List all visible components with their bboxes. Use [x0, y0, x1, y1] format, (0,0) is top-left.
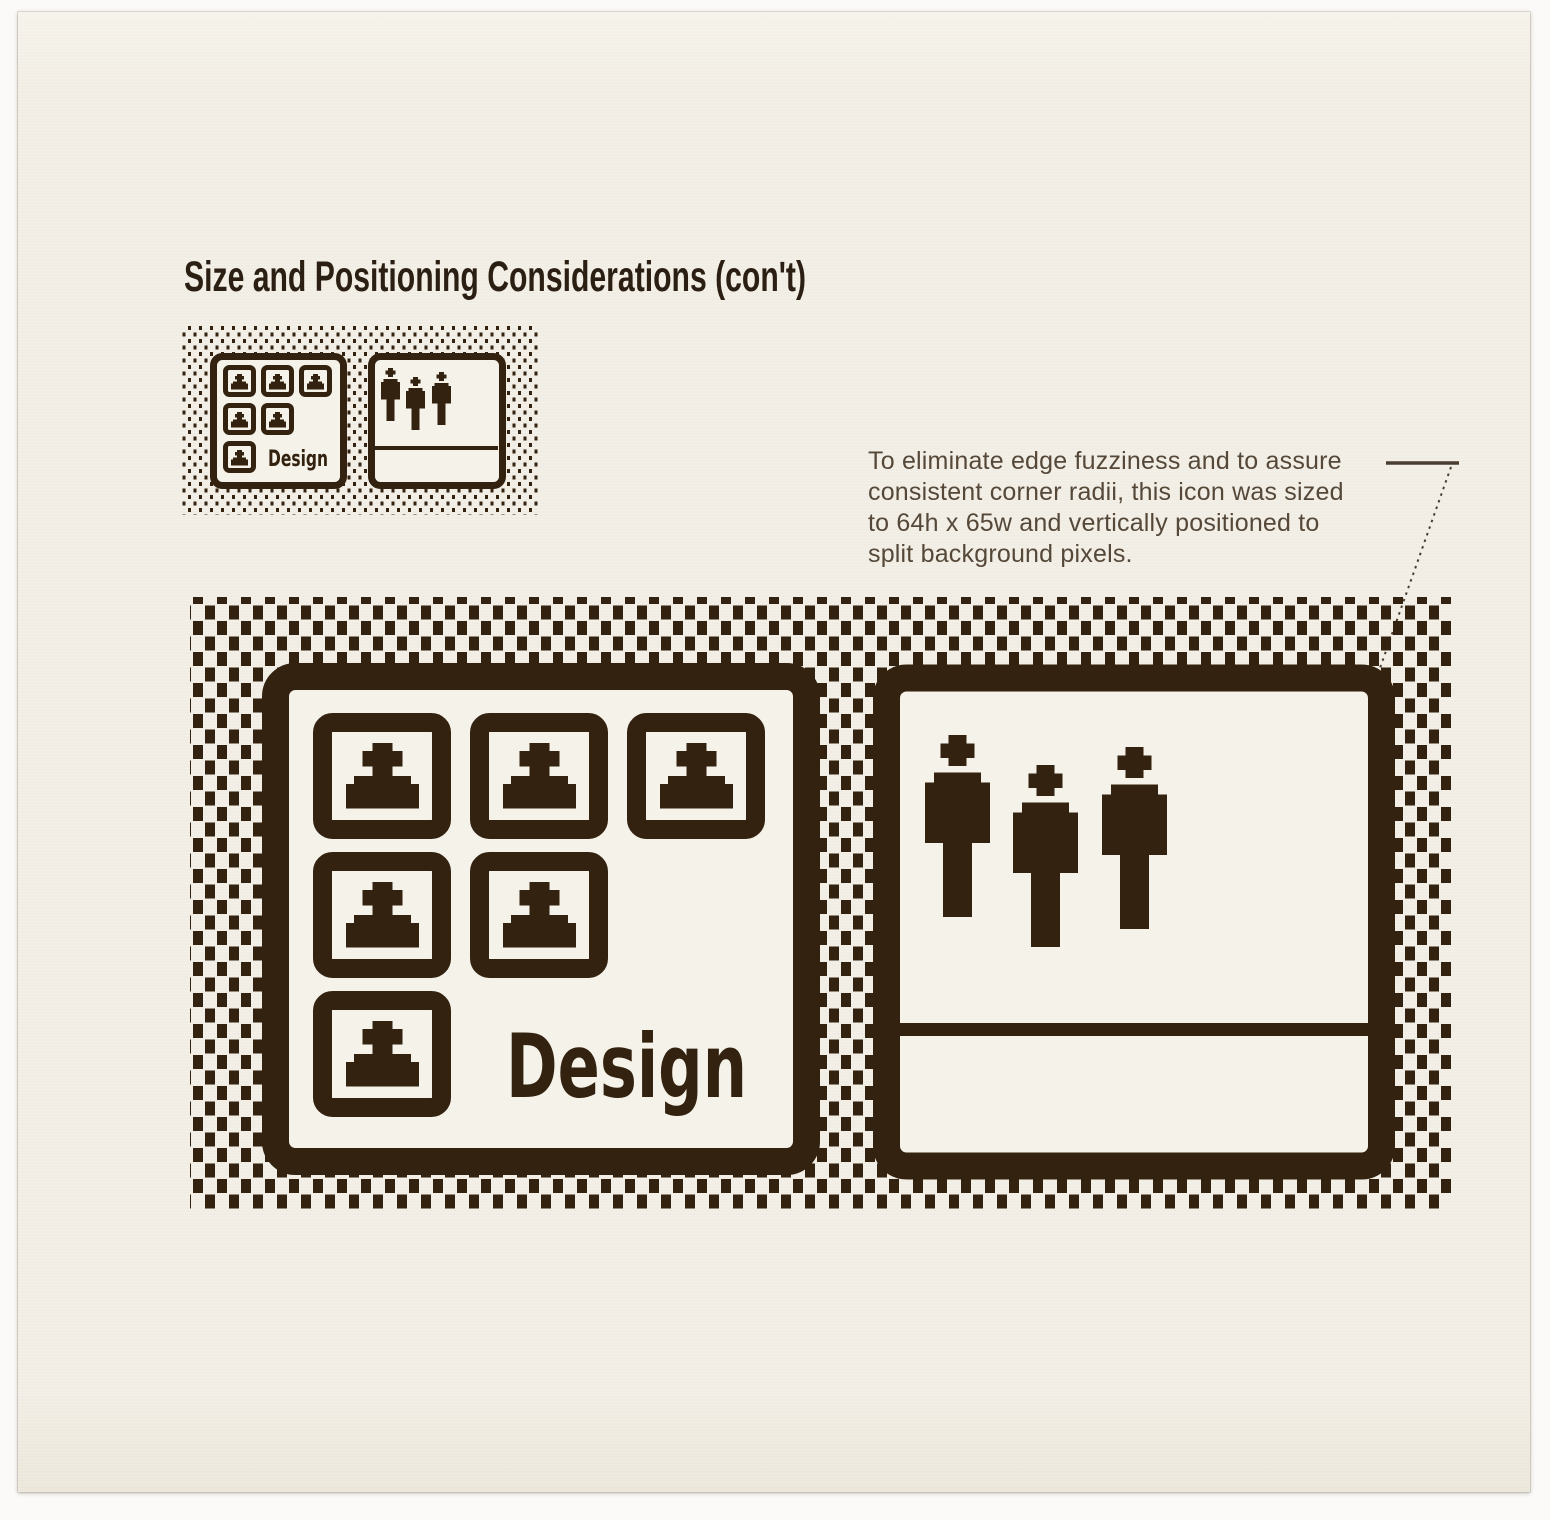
small-title-bar-divider [374, 446, 498, 450]
magnified-icons-figure: Design [190, 597, 1452, 1210]
annotation-line: split background pixels. [868, 539, 1428, 570]
small-design-label: Design [268, 447, 328, 472]
annotation-line: To eliminate edge fuzziness and to assur… [868, 446, 1428, 477]
large-people-icon [887, 678, 1382, 1166]
page-title: Size and Positioning Considerations (con… [184, 253, 806, 301]
annotation-note: To eliminate edge fuzziness and to assur… [868, 446, 1428, 570]
small-people-icon [372, 357, 503, 486]
small-icons-preview: Design [180, 325, 540, 515]
annotation-line: consistent corner radii, this icon was s… [868, 477, 1428, 508]
annotation-line: to 64h x 65w and vertically positioned t… [868, 508, 1428, 539]
large-design-group-icon: Design [276, 677, 807, 1162]
small-design-group-icon: Design [214, 357, 344, 486]
large-design-label: Design [506, 1015, 747, 1118]
figure-canvas: Size and Positioning Considerations (con… [0, 0, 1550, 1520]
large-title-bar-divider [898, 1023, 1368, 1036]
